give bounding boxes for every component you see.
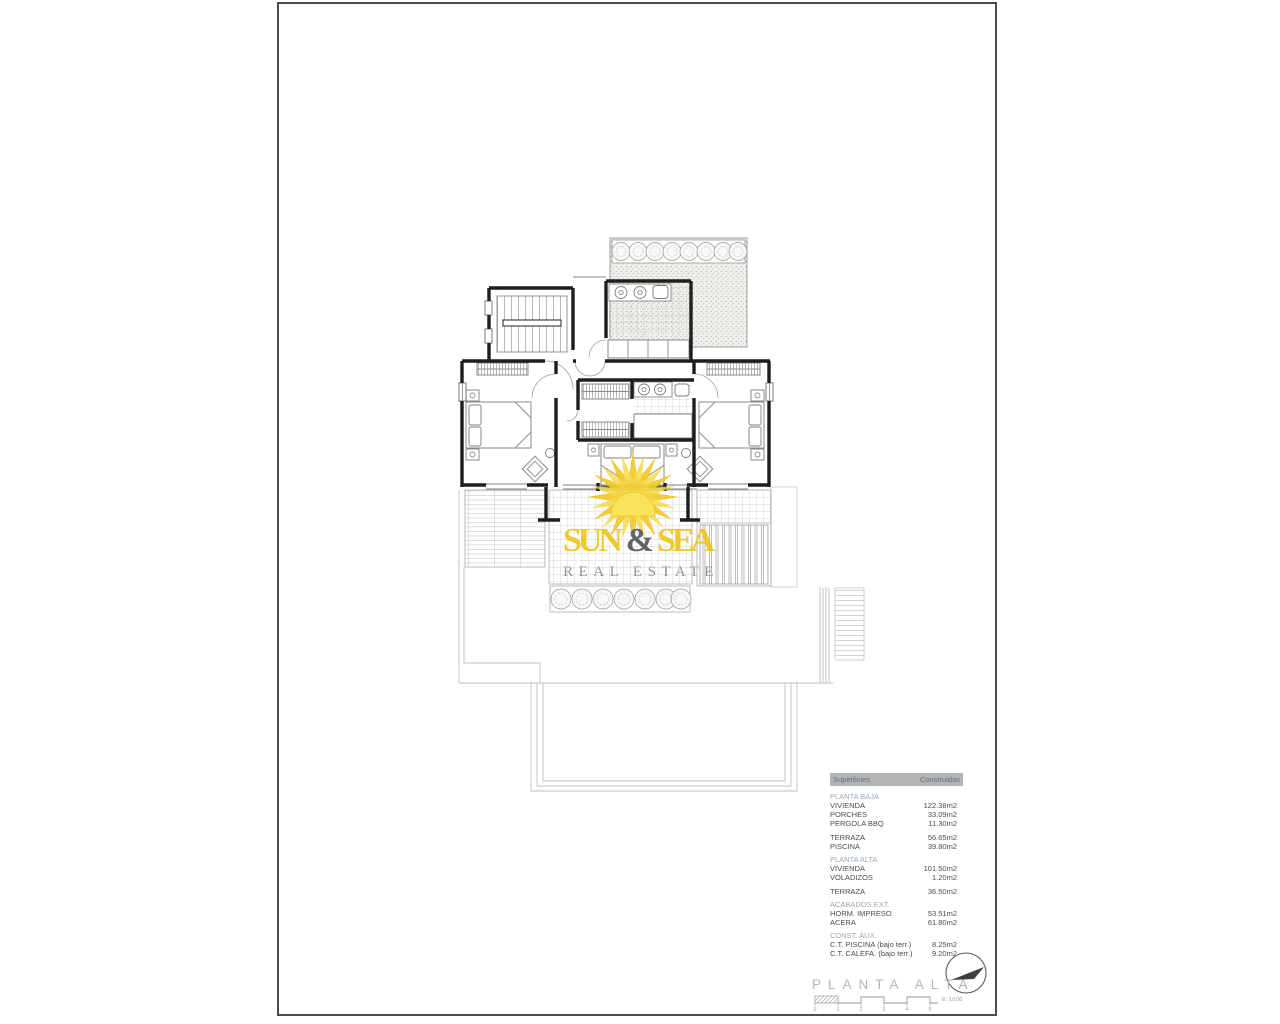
scale-label: E: 1/100 [942,997,963,1003]
row-label: TERRAZA [830,887,865,896]
svg-text:1: 1 [837,1007,840,1013]
table-section-row: PLANTA BAJA [830,792,963,801]
table-row: VOLADIZOS1.20m2 [830,873,963,882]
row-label: VIVIENDA [830,864,865,873]
row-value: 11.30m2 [928,819,957,828]
surfaces-rows: PLANTA BAJAVIVIENDA122.38m2PORCHES33.09m… [830,792,963,958]
table-row: ACERA61.80m2 [830,918,963,927]
logo-word-sea: SEA [657,522,715,559]
row-label: C.T. PISCINA (bajo terr.) [830,940,911,949]
toilet-icon [653,286,668,299]
row-label: ACERA [830,918,856,927]
table-row: VIVIENDA122.38m2 [830,801,963,810]
row-value: 61.80m2 [928,918,957,927]
wardrobe [608,340,689,358]
armchair [522,456,547,481]
row-label: PLANTA ALTA [830,855,878,864]
pool-outline [531,683,797,791]
row-value: 53.51m2 [928,909,957,918]
svg-text:4: 4 [906,1007,909,1013]
row-label: VIVIENDA [830,801,865,810]
table-row: VIVIENDA101.50m2 [830,864,963,873]
scale-bar [838,997,938,1003]
plan-title: PLANTA ALTA [812,977,975,992]
row-value: 33.09m2 [928,810,957,819]
surfaces-table-header: Superficies Construidas [830,773,963,786]
svg-text:0: 0 [814,1007,817,1013]
row-label: TERRAZA [830,833,865,842]
svg-text:3: 3 [883,1007,886,1013]
sink-icon [615,287,627,299]
table-row: PORCHES33.09m2 [830,810,963,819]
logo-ampersand: & [626,522,654,559]
sink-icon [634,287,646,299]
row-value: 8.25m2 [932,940,957,949]
logo-word-sun: SUN [563,522,623,559]
row-label: C.T. CALEFA. (bajo terr.) [830,949,913,958]
table-section-row: ACABADOS EXT. [830,900,963,909]
row-value: 1.20m2 [932,873,957,882]
staircase-room [485,296,567,352]
table-row: HORM. IMPRESO53.51m2 [830,909,963,918]
table-row: PERGOLA BBQ11.30m2 [830,819,963,828]
row-value: 122.38m2 [924,801,957,810]
bedroom-left-furniture [466,390,555,482]
svg-text:5: 5 [929,1007,932,1013]
header-col-construidas: Construidas [920,775,960,784]
table-row: PISCINA39.80m2 [830,842,963,851]
row-label: PISCINA [830,842,860,851]
deck-terrace [465,490,545,567]
scale-ticks: 0 1 2 3 4 5 [814,1007,932,1013]
logo-wordmark: SUN&SEA [563,522,715,559]
bathroom-top [608,284,689,358]
row-label: CONST. AUX. [830,931,877,940]
svg-text:2: 2 [860,1007,863,1013]
table-row: TERRAZA36.50m2 [830,887,963,896]
row-value: 9.20m2 [932,949,957,958]
surfaces-table: Superficies Construidas PLANTA BAJAVIVIE… [830,773,963,958]
row-label: HORM. IMPRESO [830,909,892,918]
armchair [687,456,712,481]
row-label: PERGOLA BBQ [830,819,884,828]
header-col-superficies: Superficies [833,775,870,784]
row-label: PORCHES [830,810,867,819]
row-value: 36.50m2 [928,887,957,896]
table-row: C.T. PISCINA (bajo terr.)8.25m2 [830,940,963,949]
toilet-icon [675,384,689,396]
table-row: TERRAZA56.65m2 [830,833,963,842]
logo-subtitle: REAL ESTATE [563,564,719,580]
table-section-row: CONST. AUX. [830,931,963,940]
table-row: C.T. CALEFA. (bajo terr.)9.20m2 [830,949,963,958]
stair-rail [503,320,561,326]
row-label: ACABADOS EXT. [830,900,890,909]
shower [634,414,692,438]
closet-and-ensuite [582,382,692,438]
sink-icon [639,384,650,395]
sink-icon [655,384,666,395]
exterior-stair [835,588,864,660]
row-label: VOLADIZOS [830,873,873,882]
table-section-row: PLANTA ALTA [830,855,963,864]
row-label: PLANTA BAJA [830,792,879,801]
floor-plan-drawing: SUN&SEA REAL ESTATE 0 1 2 3 4 5 E: 1/100 [0,0,1280,1024]
scale-bar-hatch [815,996,838,1003]
row-value: 101.50m2 [924,864,957,873]
canvas: { "page": { "title_block": { "title": "P… [0,0,1280,1024]
row-value: 39.80m2 [928,842,957,851]
row-value: 56.65m2 [928,833,957,842]
